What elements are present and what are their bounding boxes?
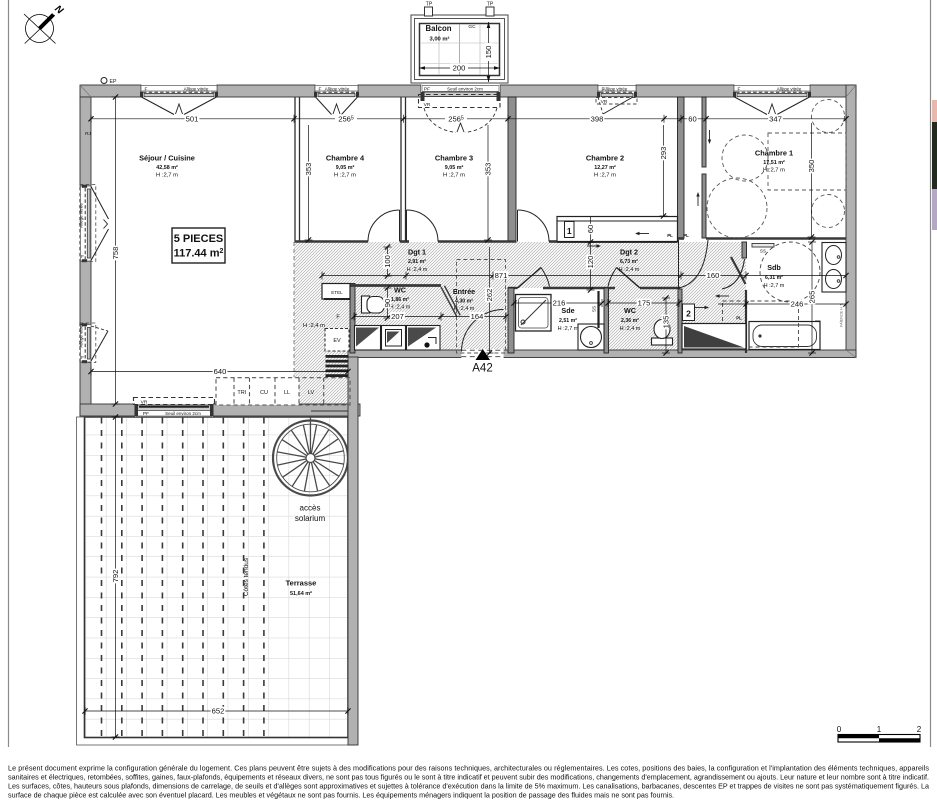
svg-text:H :2,7 m: H :2,7 m — [558, 326, 579, 332]
svg-text:H :2,4 m: H :2,4 m — [619, 267, 640, 273]
svg-text:EV: EV — [333, 338, 341, 344]
svg-text:PL: PL — [683, 233, 689, 238]
svg-text:262: 262 — [485, 289, 494, 302]
svg-text:LL: LL — [284, 390, 290, 396]
svg-text:246: 246 — [791, 300, 804, 309]
svg-text:H :2,7 m: H :2,7 m — [594, 173, 616, 179]
svg-text:4,30 m²: 4,30 m² — [455, 298, 473, 304]
svg-text:1,86 m²: 1,86 m² — [391, 297, 409, 303]
svg-text:Sdb: Sdb — [767, 263, 781, 272]
svg-text:FAÏENCE H.T.: FAÏENCE H.T. — [840, 303, 844, 327]
svg-text:surface de chaque pièce est ca: surface de chaque pièce est calculée ave… — [8, 791, 674, 800]
svg-text:sanitaires et électriques, ret: sanitaires et électriques, retombées, so… — [8, 773, 929, 782]
svg-text:51,64 m²: 51,64 m² — [290, 590, 312, 597]
svg-text:F: F — [319, 86, 322, 92]
svg-text:293: 293 — [659, 147, 668, 160]
svg-text:Allège vitrée: Allège vitrée — [79, 203, 84, 228]
svg-text:0: 0 — [837, 725, 842, 734]
svg-text:12,27 m²: 12,27 m² — [594, 165, 616, 171]
svg-text:F: F — [81, 355, 84, 360]
svg-text:Chambre 2: Chambre 2 — [586, 153, 624, 162]
svg-text:GC: GC — [468, 24, 476, 30]
svg-text:Entrée: Entrée — [453, 287, 475, 296]
svg-text:640: 640 — [214, 367, 227, 376]
svg-text:100: 100 — [383, 255, 392, 268]
svg-text:Seuil environ 2cm: Seuil environ 2cm — [447, 86, 483, 91]
svg-text:PF: PF — [424, 86, 430, 92]
svg-text:150: 150 — [484, 46, 493, 59]
svg-text:Allège vitrée: Allège vitrée — [184, 86, 209, 91]
svg-text:EP: EP — [110, 79, 117, 85]
svg-text:1: 1 — [567, 226, 572, 236]
svg-text:Dgt 1: Dgt 1 — [408, 247, 426, 256]
svg-text:TP: TP — [426, 2, 433, 8]
svg-text:3,00 m²: 3,00 m² — [430, 36, 450, 43]
svg-text:2,36 m²: 2,36 m² — [621, 318, 639, 324]
svg-text:9,05 m²: 9,05 m² — [445, 165, 464, 171]
svg-text:792: 792 — [111, 570, 120, 583]
svg-text:Allège vitrée: Allège vitrée — [325, 86, 350, 91]
svg-text:solarium: solarium — [295, 514, 326, 523]
svg-text:347: 347 — [769, 114, 782, 123]
svg-text:PL: PL — [736, 316, 742, 321]
svg-text:Seuil environ 2cm: Seuil environ 2cm — [165, 411, 201, 416]
svg-text:2,51 m²: 2,51 m² — [559, 318, 577, 324]
svg-text:60: 60 — [586, 225, 595, 233]
svg-text:WC: WC — [394, 286, 406, 295]
svg-text:Côtes tendus: Côtes tendus — [243, 557, 250, 596]
svg-text:H :2,4 m: H :2,4 m — [454, 306, 475, 312]
svg-text:Balcon: Balcon — [426, 24, 452, 33]
svg-text:H :2,7 m: H :2,7 m — [763, 168, 785, 174]
svg-text:265: 265 — [808, 291, 817, 304]
svg-text:42,58 m²: 42,58 m² — [156, 165, 178, 171]
svg-text:PF: PF — [143, 411, 149, 417]
svg-text:Chambre 4: Chambre 4 — [326, 153, 365, 162]
svg-text:H :2,7 m: H :2,7 m — [764, 283, 785, 289]
svg-text:WC: WC — [624, 306, 636, 315]
svg-text:PL: PL — [667, 233, 673, 238]
svg-text:SS: SS — [760, 249, 766, 254]
svg-text:Chambre 1: Chambre 1 — [755, 148, 793, 157]
svg-text:H :2,4 m: H :2,4 m — [620, 326, 641, 332]
svg-text:6,31 m²: 6,31 m² — [765, 275, 783, 281]
svg-text:652: 652 — [212, 707, 225, 716]
svg-text:1: 1 — [877, 725, 882, 734]
svg-text:SS: SS — [592, 306, 597, 312]
svg-text:F: F — [81, 254, 84, 259]
svg-text:175: 175 — [638, 299, 651, 308]
svg-text:VR: VR — [424, 102, 431, 108]
svg-text:Les surfaces, côtes, hauteurs: Les surfaces, côtes, hauteurs sous plafo… — [8, 782, 929, 791]
svg-text:2,91 m²: 2,91 m² — [408, 259, 426, 265]
svg-text:6,73 m²: 6,73 m² — [620, 259, 638, 265]
svg-text:2: 2 — [686, 309, 691, 319]
svg-text:H :2,4 m: H :2,4 m — [390, 305, 411, 311]
svg-text:120: 120 — [586, 256, 595, 269]
svg-text:90: 90 — [383, 299, 392, 307]
svg-text:H :2,7 m: H :2,7 m — [334, 173, 356, 179]
svg-text:LV: LV — [308, 390, 315, 396]
svg-text:TP: TP — [487, 2, 494, 8]
svg-text:F: F — [145, 86, 148, 92]
svg-text:207: 207 — [391, 312, 404, 321]
svg-text:Séjour / Cuisine: Séjour / Cuisine — [139, 153, 195, 162]
svg-text:350: 350 — [807, 160, 816, 173]
svg-text:758: 758 — [111, 247, 120, 260]
svg-text:Chambre 3: Chambre 3 — [435, 153, 473, 162]
svg-text:2: 2 — [917, 725, 922, 734]
svg-text:Allège vitrée: Allège vitrée — [777, 86, 802, 91]
svg-text:TRI: TRI — [237, 390, 246, 396]
svg-text:H :2,4 m: H :2,4 m — [303, 323, 325, 329]
svg-text:164: 164 — [471, 312, 484, 321]
svg-text:VR: VR — [601, 99, 608, 105]
svg-text:117.44 m2: 117.44 m2 — [174, 248, 224, 260]
svg-text:17,51 m²: 17,51 m² — [763, 160, 785, 166]
svg-text:accès: accès — [300, 504, 321, 513]
svg-text:501: 501 — [186, 114, 199, 123]
svg-text:9,05 m²: 9,05 m² — [336, 165, 355, 171]
svg-text:Le présent document exprime la: Le présent document exprime la configura… — [8, 763, 929, 772]
svg-text:Terrasse: Terrasse — [286, 579, 317, 588]
svg-text:398: 398 — [591, 114, 604, 123]
svg-text:A42: A42 — [472, 363, 492, 375]
svg-text:H :2,4 m: H :2,4 m — [407, 267, 428, 273]
svg-text:F: F — [738, 86, 741, 92]
svg-text:RJ: RJ — [85, 131, 91, 137]
svg-text:60: 60 — [688, 114, 696, 123]
svg-text:Allège vitrée: Allège vitrée — [603, 86, 628, 91]
svg-text:CU: CU — [260, 390, 268, 396]
svg-text:5 PIECES: 5 PIECES — [174, 233, 224, 245]
svg-text:160: 160 — [707, 271, 720, 280]
svg-text:VR: VR — [141, 400, 148, 406]
svg-text:ETEL: ETEL — [331, 290, 343, 295]
svg-text:200: 200 — [453, 63, 466, 72]
svg-text:216: 216 — [553, 299, 566, 308]
svg-text:135: 135 — [662, 316, 671, 329]
svg-text:353: 353 — [304, 163, 313, 176]
svg-text:353: 353 — [484, 163, 493, 176]
svg-text:Dgt 2: Dgt 2 — [620, 247, 638, 256]
svg-text:H :2,7 m: H :2,7 m — [156, 173, 178, 179]
svg-text:871: 871 — [495, 271, 508, 280]
svg-text:H :2,7 m: H :2,7 m — [443, 173, 465, 179]
